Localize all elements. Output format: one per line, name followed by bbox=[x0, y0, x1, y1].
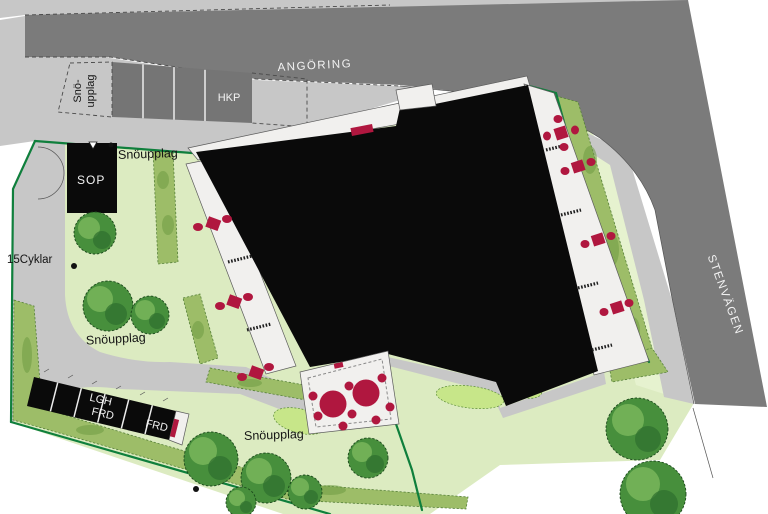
marker-dot bbox=[109, 143, 114, 148]
chair-icon bbox=[215, 302, 225, 310]
label-snoupplag-north: Snöupplag bbox=[118, 146, 178, 162]
tree-icon bbox=[131, 296, 169, 334]
label-hkp: HKP bbox=[218, 92, 241, 104]
tree-icon bbox=[83, 281, 133, 331]
tree-icon bbox=[74, 212, 116, 254]
chair-icon bbox=[243, 293, 253, 301]
round-table-icon bbox=[320, 391, 347, 418]
label-sop: SOP bbox=[77, 173, 105, 187]
chair-icon bbox=[625, 299, 634, 307]
round-table-icon bbox=[353, 380, 380, 407]
chair-icon bbox=[237, 373, 247, 381]
site-plan-drawing: ANGÖRING STENVÄGEN HKP Snö- upplag Snöup… bbox=[0, 0, 768, 514]
tree-icon bbox=[184, 432, 238, 486]
site-plan: ANGÖRING STENVÄGEN HKP Snö- upplag Snöup… bbox=[0, 0, 768, 514]
label-snow-storage-vertical-line2: upplag bbox=[85, 74, 97, 107]
hedge-texture bbox=[157, 171, 169, 189]
tree-icon bbox=[288, 475, 322, 509]
hedge-texture bbox=[76, 425, 104, 435]
chair-icon bbox=[222, 215, 232, 223]
label-snow-storage-vertical-line1: Snö- bbox=[72, 79, 84, 103]
label-15cyklar: 15Cyklar bbox=[7, 254, 53, 266]
chair-icon bbox=[600, 308, 609, 316]
label-snoupplag-south: Snöupplag bbox=[244, 427, 304, 443]
hedge-texture bbox=[162, 215, 174, 235]
tree-icon bbox=[348, 438, 388, 478]
chair-icon bbox=[560, 143, 569, 151]
chair-icon bbox=[339, 422, 348, 431]
chair-icon bbox=[378, 374, 387, 383]
chair-icon bbox=[554, 115, 563, 123]
hedge-texture bbox=[192, 321, 204, 339]
chair-icon bbox=[581, 240, 590, 248]
chair-icon bbox=[571, 126, 579, 135]
chair-icon bbox=[607, 232, 616, 240]
chair-icon bbox=[264, 363, 274, 371]
chair-icon bbox=[587, 158, 596, 166]
chair-icon bbox=[372, 416, 381, 425]
chair-icon bbox=[345, 382, 354, 391]
chair-icon bbox=[543, 132, 551, 141]
chair-icon bbox=[314, 412, 323, 421]
marker-dot bbox=[193, 486, 199, 492]
chair-icon bbox=[561, 167, 570, 175]
hedge-texture bbox=[22, 337, 32, 373]
chair-icon bbox=[193, 223, 203, 231]
marker-dot bbox=[71, 263, 77, 269]
chair-icon bbox=[309, 392, 318, 401]
tree-icon bbox=[606, 398, 668, 460]
chair-icon bbox=[348, 410, 357, 419]
chair-icon bbox=[386, 403, 395, 412]
